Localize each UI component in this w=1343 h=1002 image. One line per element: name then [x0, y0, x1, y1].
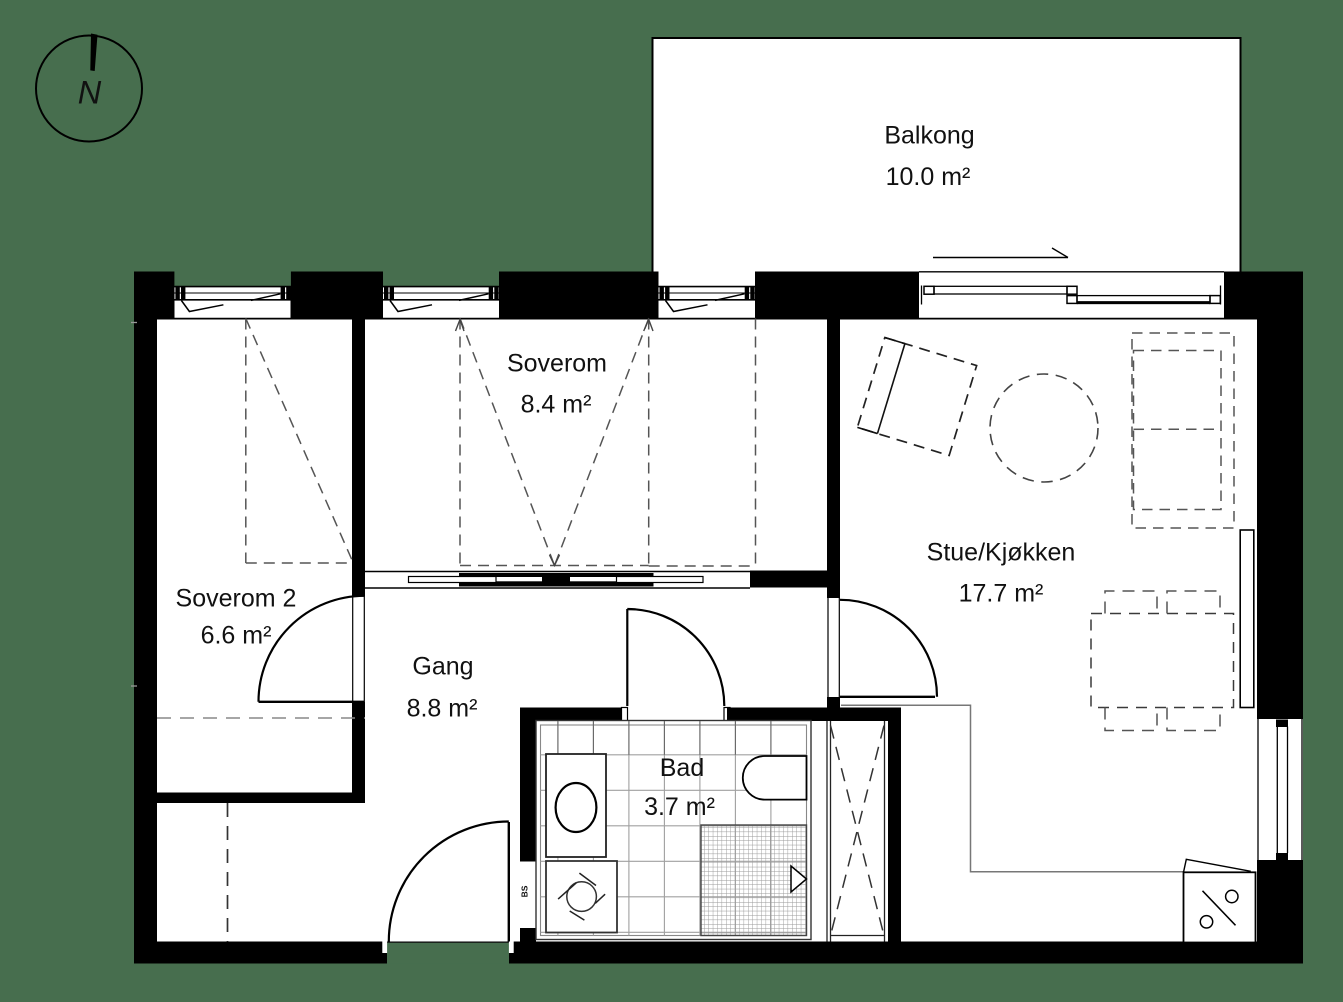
- svg-text:3.7 m²: 3.7 m²: [644, 793, 715, 821]
- svg-text:Balkong: Balkong: [884, 121, 974, 149]
- svg-text:8.4 m²: 8.4 m²: [521, 391, 592, 419]
- svg-text:Soverom 2: Soverom 2: [176, 584, 297, 612]
- svg-text:N: N: [78, 75, 102, 111]
- svg-text:17.7 m²: 17.7 m²: [959, 580, 1044, 608]
- svg-text:Gang: Gang: [412, 652, 473, 680]
- svg-text:Bad: Bad: [660, 754, 704, 782]
- svg-text:10.0 m²: 10.0 m²: [886, 163, 971, 191]
- svg-text:BS: BS: [520, 885, 530, 897]
- svg-text:Soverom: Soverom: [507, 349, 607, 377]
- svg-text:8.8 m²: 8.8 m²: [407, 695, 478, 723]
- svg-text:6.6 m²: 6.6 m²: [201, 621, 272, 649]
- svg-text:Stue/Kjøkken: Stue/Kjøkken: [927, 539, 1076, 567]
